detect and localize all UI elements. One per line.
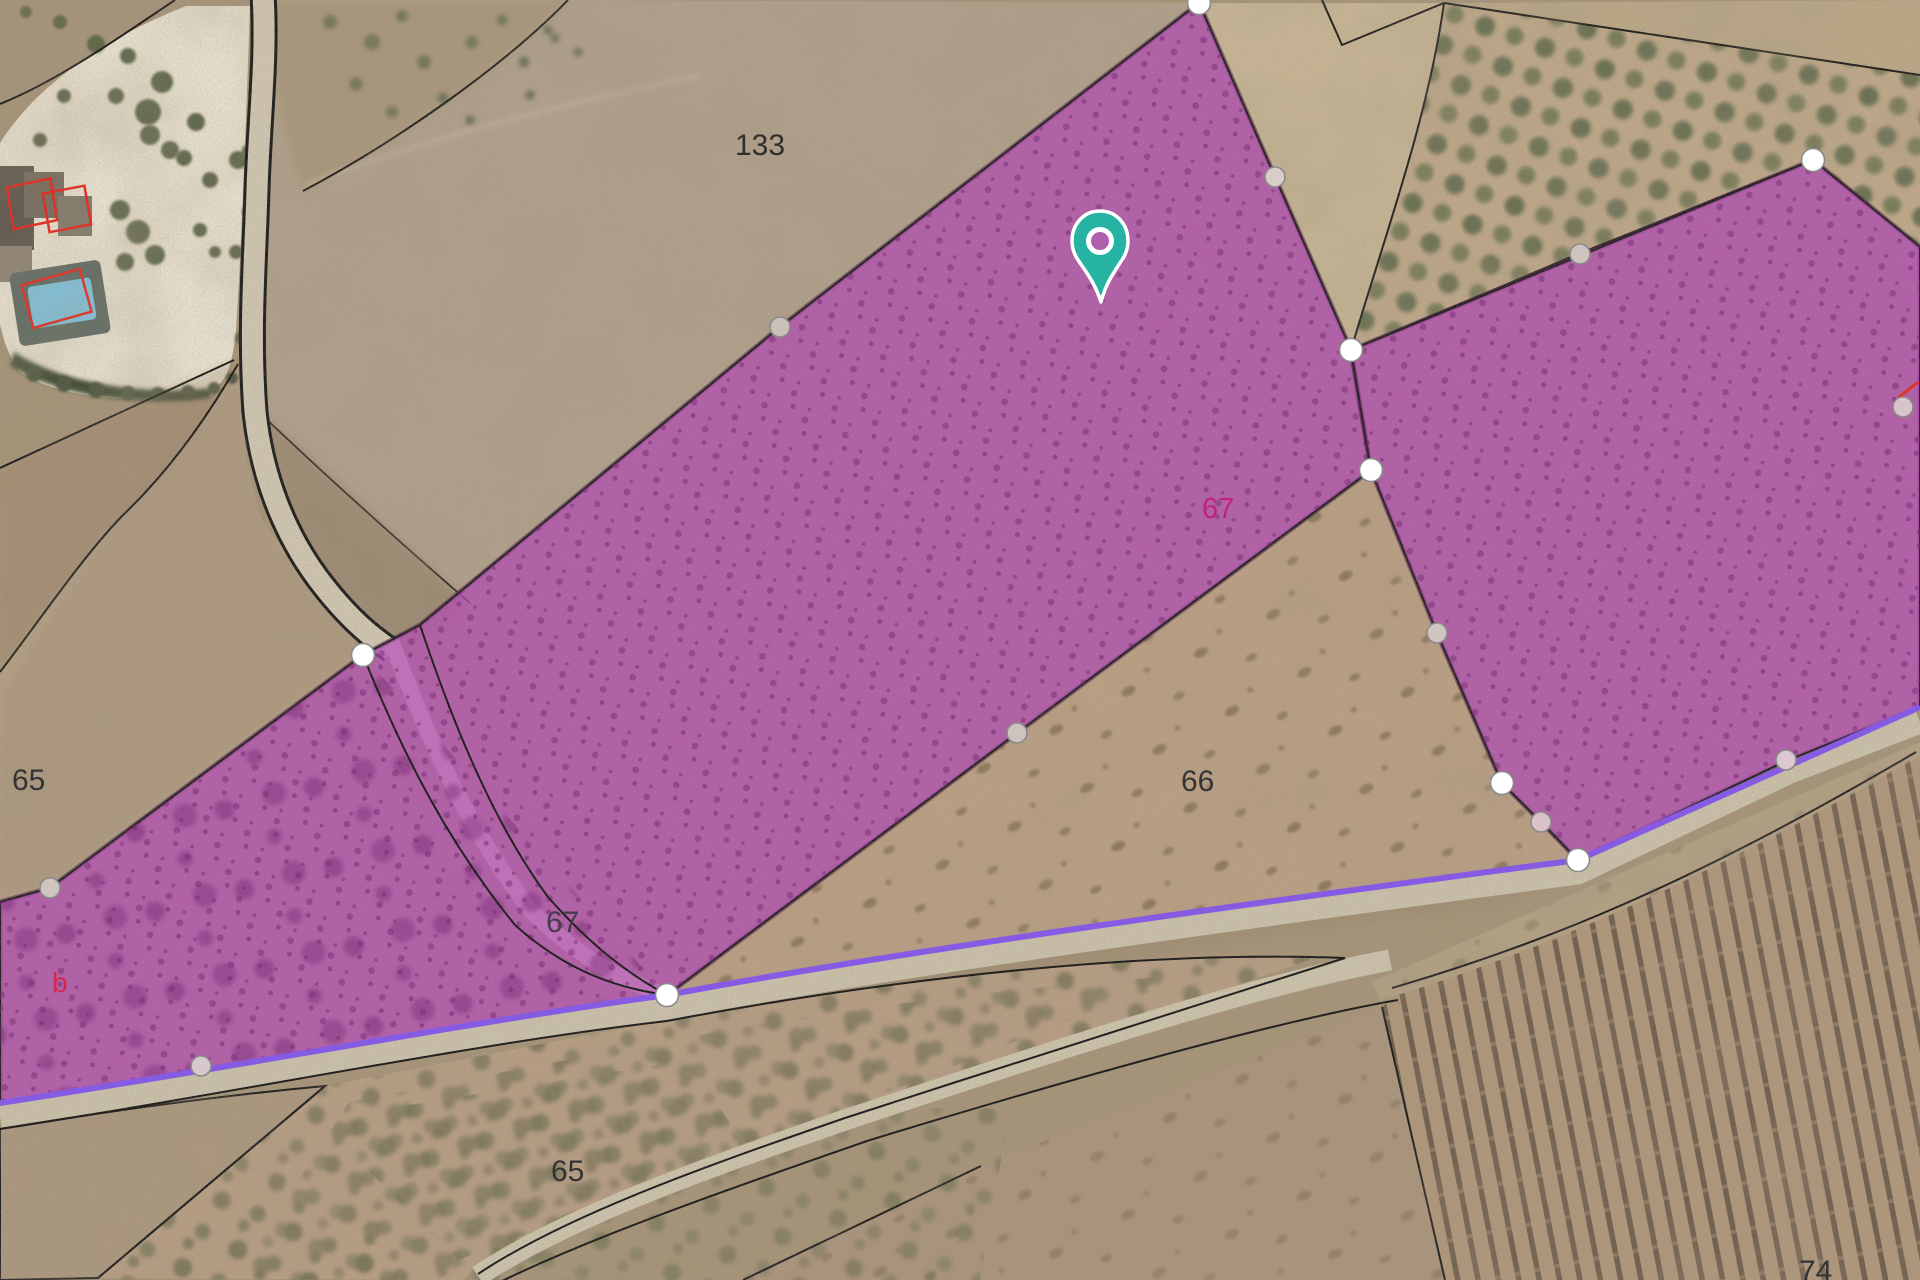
svg-text:74: 74 <box>1799 1255 1832 1280</box>
svg-text:66: 66 <box>1181 765 1214 798</box>
svg-text:65: 65 <box>12 764 45 797</box>
svg-text:67: 67 <box>546 906 579 939</box>
svg-text:67: 67 <box>1202 493 1234 525</box>
svg-text:65: 65 <box>551 1155 584 1188</box>
svg-text:133: 133 <box>735 129 785 162</box>
svg-text:b: b <box>52 967 68 998</box>
